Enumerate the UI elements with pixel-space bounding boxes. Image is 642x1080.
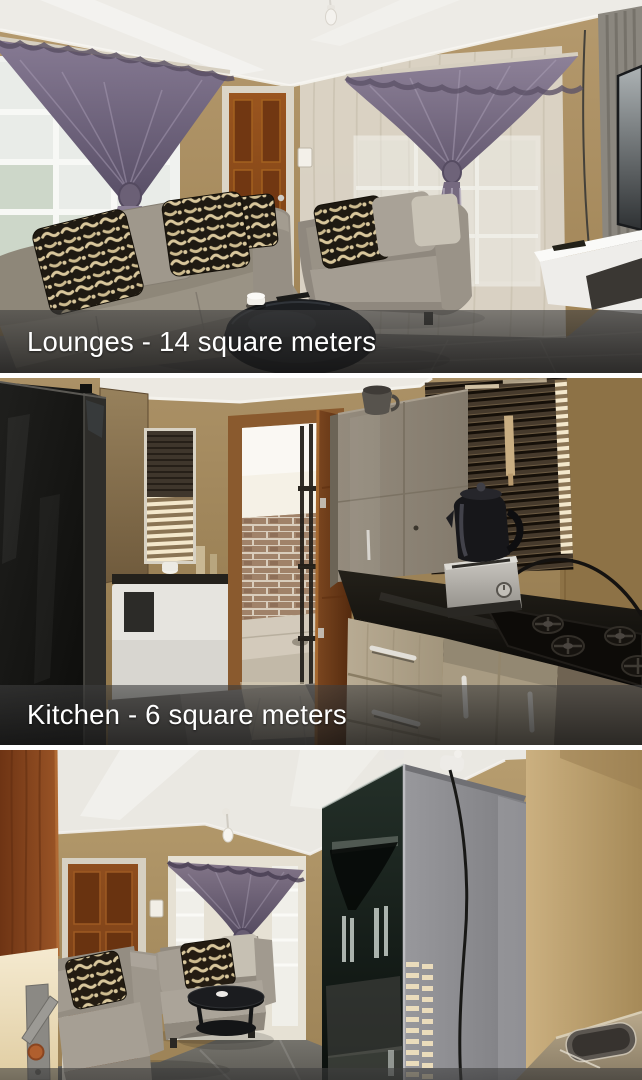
light-switch: [298, 148, 312, 167]
tv-screen: [618, 66, 642, 230]
reflected-couch: [326, 976, 402, 1058]
open-door-panel: [100, 388, 148, 584]
mirrored-cabinet: [322, 750, 526, 1080]
hinge: [320, 498, 326, 508]
small-window-blinds: [144, 428, 196, 564]
light-switch: [150, 900, 163, 917]
photo-kitchen[interactable]: Kitchen - 6 square meters: [0, 378, 642, 745]
hinge: [318, 628, 324, 638]
burner: [605, 627, 635, 645]
caption-kitchen: Kitchen - 6 square meters: [0, 685, 642, 745]
door-knob: [29, 1045, 44, 1060]
patterned-cushion: [161, 191, 251, 277]
toaster: [444, 556, 522, 618]
burner: [622, 656, 642, 676]
caption-kitchen-text: Kitchen - 6 square meters: [27, 699, 347, 731]
appliance-display: [124, 592, 154, 632]
door-handle: [278, 195, 284, 201]
items-on-top: [439, 755, 464, 772]
lounge-second-illustration: [0, 750, 642, 1080]
tall-cupboard: [330, 386, 468, 589]
burner: [552, 636, 584, 656]
patterned-cushion: [180, 938, 236, 991]
caption-lounge-second: [0, 1068, 642, 1080]
burner: [533, 615, 563, 633]
property-photo-gallery: Lounges - 14 square meters: [0, 0, 642, 1080]
photo-lounge[interactable]: Lounges - 14 square meters: [0, 0, 642, 373]
photo-lounge-second[interactable]: [0, 750, 642, 1080]
patterned-cushion: [64, 950, 127, 1010]
white-cup: [216, 991, 228, 997]
caption-lounges-text: Lounges - 14 square meters: [27, 326, 376, 358]
foreground-door: [0, 750, 58, 1080]
caption-lounges: Lounges - 14 square meters: [0, 310, 642, 373]
